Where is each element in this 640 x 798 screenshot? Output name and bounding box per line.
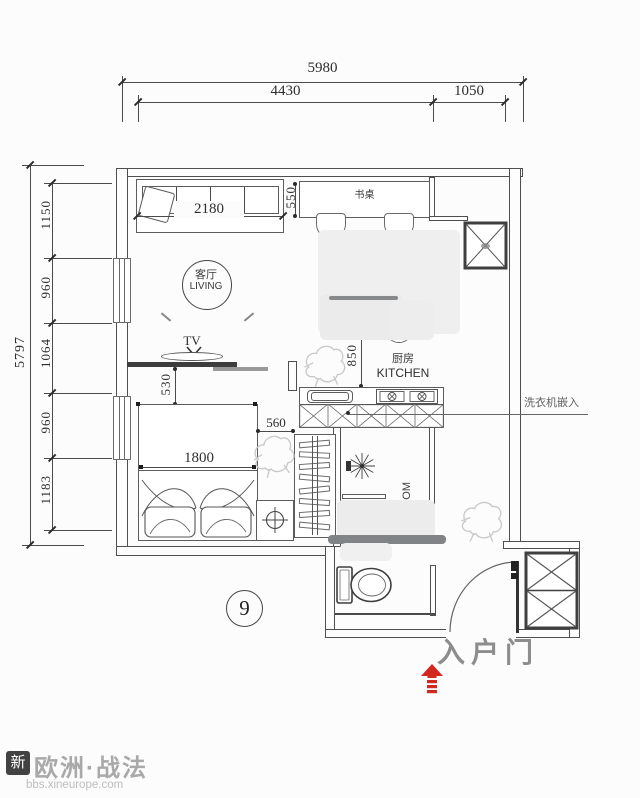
plan-number-badge: 9 bbox=[226, 590, 263, 627]
kitchen-sink-basin bbox=[311, 392, 349, 401]
sofa-cushion-divider bbox=[244, 187, 245, 213]
dim-sofa-width: 2180 bbox=[174, 201, 244, 218]
blur-patch bbox=[337, 500, 435, 538]
wall-top bbox=[116, 168, 523, 177]
dim-ext bbox=[44, 258, 112, 259]
dim-ext-top-right bbox=[523, 76, 524, 122]
ceiling-tick-right bbox=[244, 312, 254, 321]
tv-unit bbox=[161, 352, 223, 361]
doodle-figure bbox=[249, 427, 302, 483]
dim-top-seg1: 4430 bbox=[138, 83, 433, 100]
living-room-label-cn: 客厅 bbox=[182, 266, 230, 282]
window-bedroom bbox=[113, 396, 131, 460]
dim-left-seg3: 1064 bbox=[38, 338, 54, 368]
dim-dot bbox=[293, 214, 297, 218]
wall-bedroom-bottom bbox=[116, 546, 335, 556]
kitchen-label-en: KITCHEN bbox=[369, 366, 437, 380]
dim-left-seg4: 960 bbox=[38, 411, 54, 434]
dim-desk-depth: 550 bbox=[283, 186, 299, 209]
towel-bar bbox=[342, 494, 386, 499]
wardrobe bbox=[294, 434, 336, 538]
kitchen-cabinet-hatch bbox=[299, 404, 444, 428]
shower-head-icon bbox=[346, 450, 378, 482]
entry-door-hinge bbox=[511, 561, 518, 571]
wall-entry-left bbox=[325, 546, 335, 638]
dim-line-top-segments bbox=[138, 102, 505, 103]
dim-dot bbox=[173, 367, 177, 371]
entry-door-hinge bbox=[511, 573, 518, 579]
entry-door-label: 入户门 bbox=[437, 631, 539, 671]
bed-corner-mark bbox=[253, 402, 257, 406]
red-marker-icon bbox=[420, 664, 444, 696]
watermark-brand: 欧洲·战法 bbox=[34, 748, 148, 783]
dim-left-seg1: 1150 bbox=[38, 200, 54, 230]
dim-left-seg5: 1183 bbox=[38, 475, 54, 505]
wall-kitchen-stub bbox=[288, 361, 297, 391]
bathroom-label-fragment: OM bbox=[401, 482, 413, 500]
window-living bbox=[113, 258, 131, 323]
flue-label-mark bbox=[481, 243, 490, 249]
nightstand-lamp-symbol bbox=[256, 500, 294, 541]
ceiling-tick-left bbox=[161, 312, 171, 321]
dim-left-seg2: 960 bbox=[38, 276, 54, 299]
watermark-url: bbs.xineurope.com bbox=[26, 779, 123, 791]
dim-ext bbox=[44, 183, 112, 184]
dim-top-seg2: 1050 bbox=[433, 83, 505, 100]
cooktop bbox=[376, 389, 438, 404]
watermark-logo-char: 新 bbox=[10, 754, 25, 771]
dim-top-overall: 5980 bbox=[122, 60, 523, 77]
kitchen-label-cn: 厨房 bbox=[371, 350, 435, 366]
dim-dot bbox=[139, 465, 143, 469]
wall-shower-right bbox=[429, 427, 435, 504]
washer-note-label: 洗衣机嵌入 bbox=[524, 394, 579, 410]
dim-ext bbox=[44, 323, 112, 324]
dim-line-left-overall bbox=[30, 165, 31, 546]
wall-tv-low bbox=[213, 367, 268, 371]
shoe-cabinet bbox=[524, 551, 580, 630]
dim-ext bbox=[44, 393, 112, 394]
blur-line-remnant bbox=[329, 296, 398, 300]
toilet bbox=[336, 560, 394, 610]
entry-door-leaf bbox=[516, 561, 519, 633]
dim-bed-width: 1800 bbox=[168, 450, 230, 467]
desk-label: 书桌 bbox=[299, 186, 430, 201]
floorplan-canvas: 5980 4430 1050 5797 1150 960 1064 960 11… bbox=[0, 0, 640, 798]
wardrobe-rail bbox=[312, 436, 318, 535]
dim-ext bbox=[44, 458, 112, 459]
washer-leader-line bbox=[349, 414, 588, 415]
wall-entry-top bbox=[503, 541, 580, 549]
watermark-logo: 新 bbox=[6, 751, 30, 775]
dim-ext bbox=[22, 165, 84, 166]
dim-line-bed-width bbox=[141, 467, 255, 468]
dim-ext bbox=[44, 530, 112, 531]
bed-corner-mark bbox=[136, 402, 140, 406]
doodle-figure bbox=[303, 340, 349, 390]
dim-tv-offset: 530 bbox=[158, 373, 174, 396]
wall-right bbox=[509, 168, 521, 549]
flue-box bbox=[463, 221, 508, 270]
bed-blanket-and-pillows bbox=[138, 470, 258, 541]
plan-number: 9 bbox=[239, 596, 250, 621]
dim-left-overall: 5797 bbox=[13, 336, 29, 368]
wall-toilet-stub bbox=[430, 565, 436, 616]
dim-ext bbox=[22, 545, 84, 546]
line-toilet-alcove bbox=[335, 613, 435, 615]
doodle-figure bbox=[456, 496, 511, 547]
living-room-label-en: LIVING bbox=[182, 281, 230, 292]
blur-patch bbox=[340, 543, 392, 561]
dim-ext-top-left bbox=[122, 76, 123, 122]
entry-door-swing-arc bbox=[447, 559, 519, 635]
blur-patch bbox=[390, 300, 434, 340]
dim-line-tv-offset bbox=[175, 369, 176, 405]
